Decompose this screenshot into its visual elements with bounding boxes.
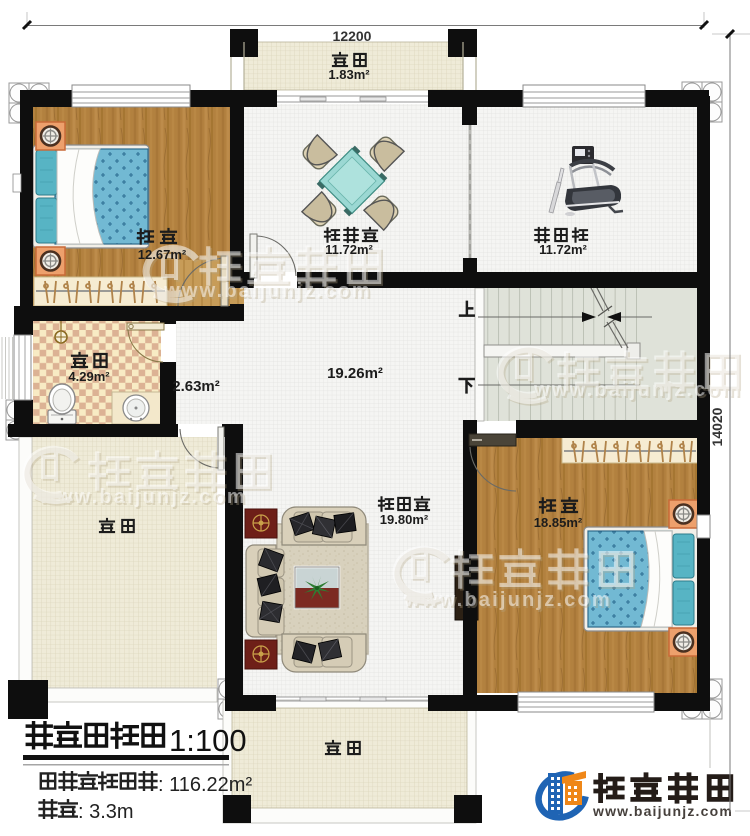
svg-text:11.72m²: 11.72m² xyxy=(325,242,373,257)
svg-text:www.baijunjz.com: www.baijunjz.com xyxy=(38,486,247,508)
svg-text:www.baijunjz.com: www.baijunjz.com xyxy=(533,379,742,401)
svg-text:11.72m²: 11.72m² xyxy=(539,242,587,257)
svg-text:1.83m²: 1.83m² xyxy=(328,67,370,82)
svg-text:www.baijunjz.com: www.baijunjz.com xyxy=(592,803,733,819)
svg-text:12.67m²: 12.67m² xyxy=(138,247,187,262)
svg-text:19.26m²: 19.26m² xyxy=(327,365,383,382)
svg-text:4.29m²: 4.29m² xyxy=(68,369,110,384)
svg-text:2.63m²: 2.63m² xyxy=(172,378,220,395)
svg-text:: 3.3m: : 3.3m xyxy=(78,801,134,823)
svg-text:www.baijunjz.com: www.baijunjz.com xyxy=(403,589,612,611)
svg-text:14020: 14020 xyxy=(709,407,725,446)
svg-text:19.80m²: 19.80m² xyxy=(380,512,429,527)
svg-text:1:100: 1:100 xyxy=(169,723,247,758)
svg-text:18.85m²: 18.85m² xyxy=(534,515,583,530)
svg-text:www.baijunjz.com: www.baijunjz.com xyxy=(163,280,372,302)
svg-text:: 116.22m²: : 116.22m² xyxy=(158,774,252,796)
svg-text:12200: 12200 xyxy=(333,28,372,44)
